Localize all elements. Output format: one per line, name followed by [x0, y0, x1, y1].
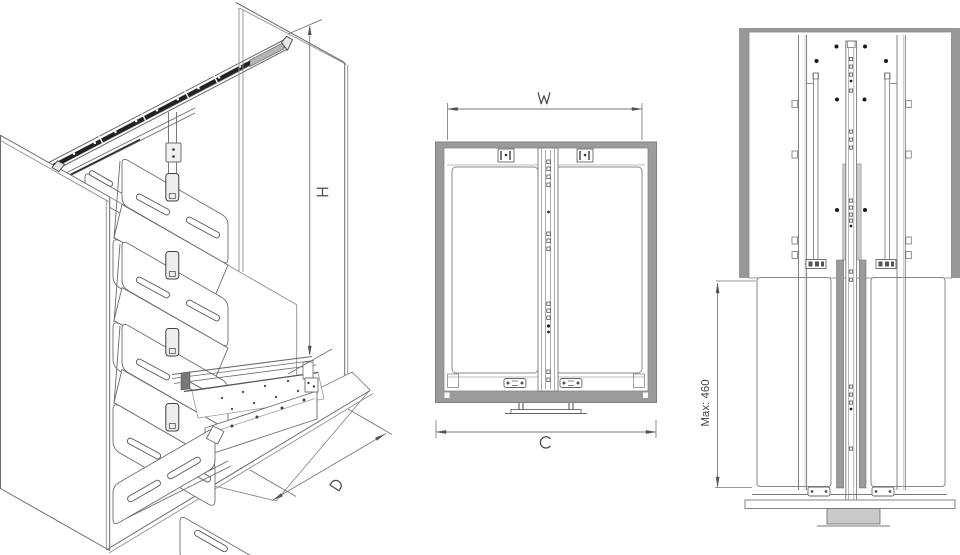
svg-text:Max: 460: Max: 460: [700, 379, 712, 426]
